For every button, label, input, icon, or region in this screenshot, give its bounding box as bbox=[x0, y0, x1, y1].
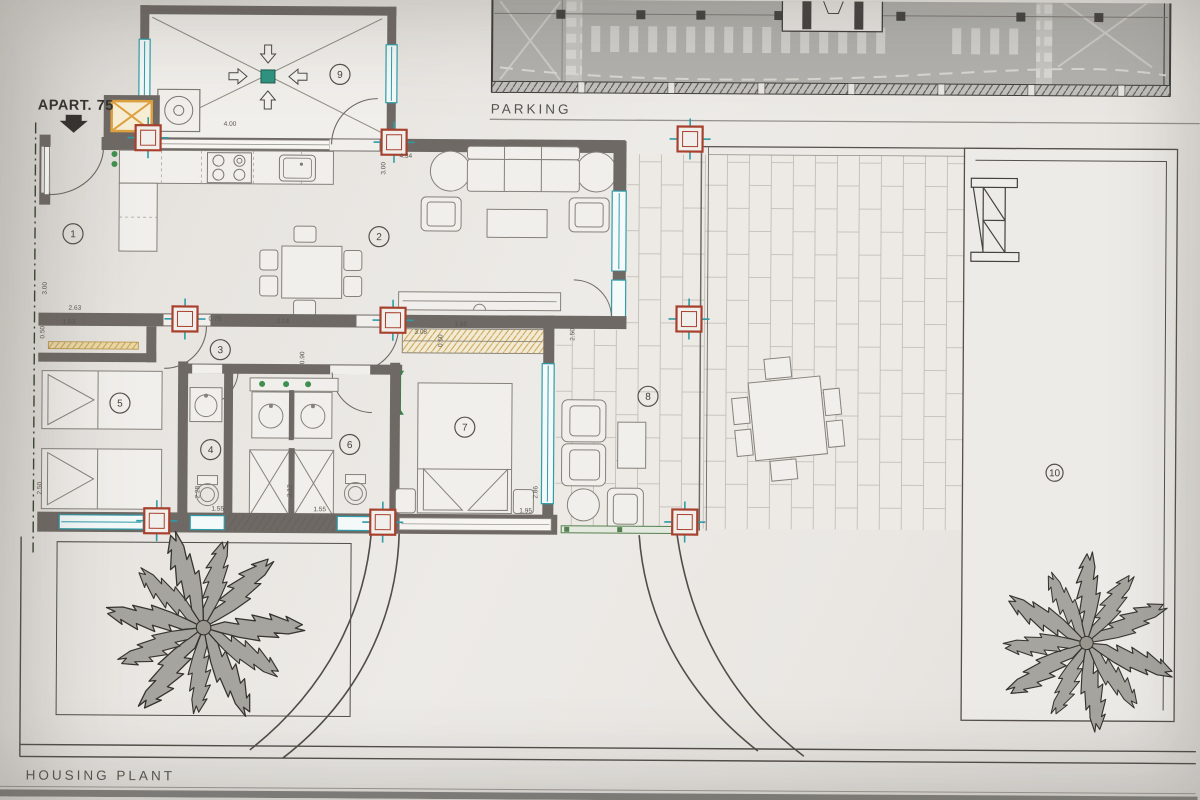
dimension-label: 0.50 bbox=[437, 334, 444, 347]
dimension-label: 0.90 bbox=[299, 351, 306, 364]
bedroom-5 bbox=[37, 326, 188, 528]
parking-stairwell bbox=[782, 0, 882, 32]
svg-text:1: 1 bbox=[70, 229, 76, 240]
svg-text:7: 7 bbox=[462, 423, 468, 434]
palm-tree-left bbox=[103, 528, 305, 722]
dimension-label: 1.55 bbox=[313, 506, 326, 513]
dimension-label: 0.75 bbox=[208, 316, 221, 323]
terrace-round-table bbox=[567, 489, 599, 521]
room-number-4: 4 bbox=[201, 440, 221, 460]
bath4-window bbox=[190, 515, 224, 529]
terrace-door-swing bbox=[574, 280, 612, 318]
terrace-sill bbox=[561, 526, 679, 534]
bedroom-7 bbox=[395, 315, 554, 530]
parking-title: PARKING bbox=[491, 101, 572, 116]
terrace-door bbox=[612, 280, 626, 318]
terrace-coffee-table bbox=[618, 422, 646, 468]
property-line bbox=[33, 123, 36, 553]
svg-text:3: 3 bbox=[217, 345, 223, 356]
bed-double bbox=[417, 383, 512, 514]
dimension-label: 3.00 bbox=[42, 282, 49, 295]
svg-text:2: 2 bbox=[376, 232, 382, 243]
dimension-label: 2.50 bbox=[36, 482, 43, 495]
room-number-1: 1 bbox=[63, 224, 83, 244]
sofa-back bbox=[467, 146, 579, 160]
dimension-label: 2.50 bbox=[569, 328, 576, 341]
dimension-label: 2.63 bbox=[69, 305, 82, 312]
dimension-label: 1.53 bbox=[62, 319, 75, 326]
patio-drain bbox=[261, 70, 275, 83]
washing-machine bbox=[158, 89, 200, 131]
room-number-6: 6 bbox=[340, 434, 360, 454]
parking-title-rule bbox=[490, 119, 1200, 123]
street-line-2 bbox=[20, 756, 1196, 763]
svg-text:9: 9 bbox=[337, 70, 343, 81]
bathroom-6 bbox=[249, 362, 400, 529]
dimension-label: 4.34 bbox=[399, 153, 412, 160]
bed-single-2 bbox=[41, 449, 161, 510]
svg-text:8: 8 bbox=[645, 392, 651, 403]
dimension-label: 1.55 bbox=[211, 506, 224, 513]
kitchen-sink bbox=[279, 155, 315, 181]
patio-door-opening bbox=[330, 139, 380, 150]
bath6-window bbox=[337, 516, 373, 530]
floorplan-drawing: PARKING bbox=[0, 0, 1200, 800]
parking-structure: PARKING bbox=[490, 0, 1200, 124]
dimension-label: 0.50 bbox=[39, 326, 46, 339]
dimension-label: 2.28 bbox=[194, 485, 201, 498]
page-edge bbox=[0, 789, 1198, 800]
column-marker bbox=[669, 118, 710, 159]
dimension-label: 2.12 bbox=[286, 484, 293, 497]
coffee-table bbox=[487, 209, 547, 237]
nightstand-left bbox=[395, 489, 415, 513]
entry-door-swing bbox=[49, 147, 103, 195]
apartment-pointer-arrow bbox=[60, 115, 88, 133]
dimension-label: 2.86 bbox=[532, 486, 539, 499]
apartment-label: APART. 75 bbox=[38, 98, 114, 114]
dimension-label: 1.95 bbox=[519, 508, 532, 515]
dimension-label: 4.00 bbox=[224, 121, 237, 128]
bed-single-1 bbox=[42, 371, 162, 430]
dimension-label: 3.08 bbox=[414, 329, 427, 336]
patio-9 bbox=[139, 5, 398, 141]
dimension-label: 3.00 bbox=[380, 162, 387, 175]
tv-sideboard bbox=[399, 292, 561, 311]
entry-door-leaf bbox=[44, 147, 49, 195]
floorplan-sheet: PARKING bbox=[0, 0, 1200, 800]
plan-title: HOUSING PLANT bbox=[26, 767, 175, 783]
dining-set bbox=[260, 226, 363, 317]
walkway-right bbox=[638, 535, 759, 751]
bath6-toilet bbox=[344, 474, 366, 504]
column-marker bbox=[164, 298, 205, 339]
street-line-1 bbox=[20, 744, 1196, 751]
bath4-sink bbox=[190, 387, 222, 421]
svg-text:10: 10 bbox=[1049, 468, 1061, 479]
dimension-label: 2.14 bbox=[276, 318, 289, 325]
svg-text:4: 4 bbox=[208, 445, 214, 456]
stove bbox=[207, 153, 251, 183]
room-number-2: 2 bbox=[369, 227, 389, 247]
sofa-seat bbox=[467, 159, 579, 192]
svg-text:6: 6 bbox=[347, 440, 353, 451]
room-number-3: 3 bbox=[210, 340, 230, 360]
dimension-label: 1.95 bbox=[454, 321, 467, 328]
svg-text:5: 5 bbox=[117, 399, 123, 410]
